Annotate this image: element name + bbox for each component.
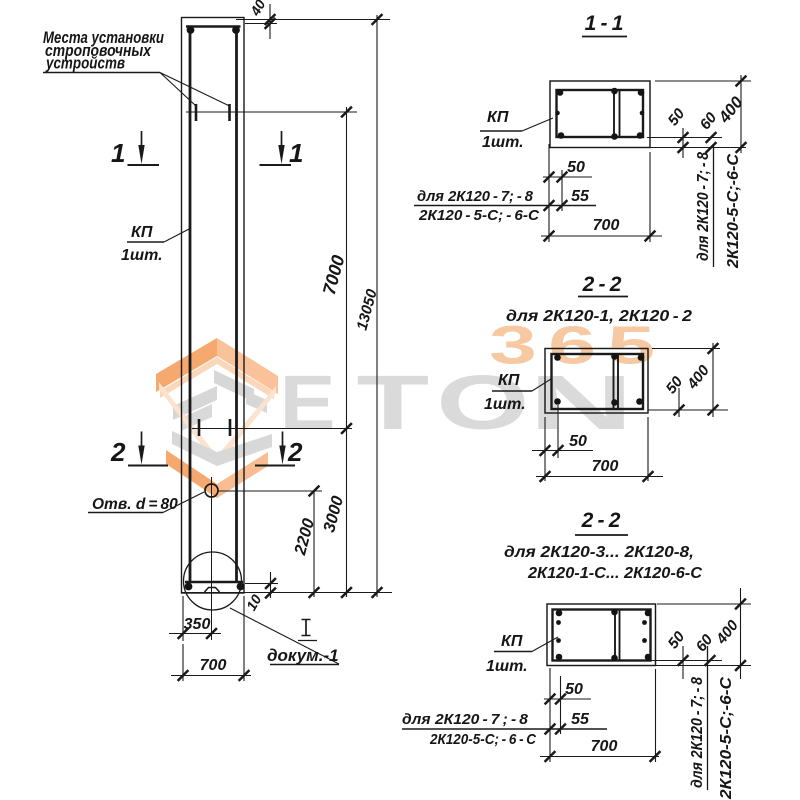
svg-text:для 2К120 - 7 ; - 8: для 2К120 - 7 ; - 8 (402, 711, 529, 728)
svg-text:50: 50 (567, 159, 585, 176)
svg-text:7000: 7000 (319, 253, 349, 297)
svg-text:400: 400 (683, 362, 713, 393)
svg-text:1шт.: 1шт. (482, 134, 524, 151)
svg-text:700: 700 (593, 217, 620, 234)
svg-text:1шт.: 1шт. (486, 658, 528, 675)
svg-text:1 - 1: 1 - 1 (585, 12, 624, 35)
svg-text:50: 50 (565, 681, 583, 698)
svg-text:T: T (357, 360, 430, 446)
svg-text:докум.-1: докум.-1 (267, 646, 339, 665)
svg-text:60: 60 (693, 631, 717, 655)
svg-text:2 - 2: 2 - 2 (582, 273, 622, 296)
svg-text:КП: КП (487, 109, 509, 126)
svg-text:50: 50 (569, 433, 587, 450)
svg-text:Отв. d = 80: Отв. d = 80 (92, 496, 178, 513)
svg-text:700: 700 (592, 458, 619, 475)
svg-text:2К120-5-С; - 6 - С: 2К120-5-С; - 6 - С (429, 731, 537, 748)
svg-text:400: 400 (712, 617, 742, 648)
svg-text:для 2К120 - 7; - 8: для 2К120 - 7; - 8 (695, 152, 712, 261)
svg-text:для 2К120 - 7; - 8: для 2К120 - 7; - 8 (689, 677, 706, 788)
svg-text:КП: КП (498, 372, 520, 389)
svg-text:50: 50 (665, 105, 689, 129)
svg-text:2К120-5-С;-6-С: 2К120-5-С;-6-С (718, 677, 735, 800)
svg-text:1: 1 (289, 138, 303, 168)
svg-text:2 - 2: 2 - 2 (581, 509, 621, 532)
svg-text:для 2К120 - 7; - 8: для 2К120 - 7; - 8 (417, 188, 534, 205)
svg-text:E: E (280, 360, 336, 446)
svg-text:3000: 3000 (320, 493, 347, 534)
svg-text:для 2К120-3... 2К120-8,: для 2К120-3... 2К120-8, (504, 544, 694, 561)
svg-text:2К120-5-С;-6-С: 2К120-5-С;-6-С (725, 154, 742, 269)
svg-text:700: 700 (591, 738, 618, 755)
svg-text:КП: КП (131, 224, 153, 241)
svg-text:2К120-1-С... 2К120-6-С: 2К120-1-С... 2К120-6-С (527, 565, 702, 582)
svg-text:10: 10 (243, 592, 265, 614)
svg-text:для 2К120-1, 2К120 - 2: для 2К120-1, 2К120 - 2 (506, 308, 692, 325)
svg-text:КП: КП (501, 633, 523, 650)
svg-text:1: 1 (111, 138, 125, 168)
svg-text:400: 400 (715, 93, 747, 127)
svg-text:2: 2 (287, 437, 303, 467)
svg-text:2К120 - 5-С; - 6-С: 2К120 - 5-С; - 6-С (418, 207, 540, 224)
svg-text:55: 55 (571, 188, 590, 205)
svg-text:40: 40 (246, 0, 268, 19)
svg-text:700: 700 (200, 657, 227, 674)
svg-text:2: 2 (110, 437, 126, 467)
svg-text:устройств: устройств (45, 54, 125, 73)
svg-text:55: 55 (571, 711, 590, 728)
svg-text:1шт.: 1шт. (484, 396, 526, 413)
svg-text:50: 50 (665, 628, 689, 652)
svg-text:50: 50 (663, 373, 687, 397)
svg-text:350: 350 (184, 616, 211, 633)
svg-text:1шт.: 1шт. (121, 247, 163, 264)
